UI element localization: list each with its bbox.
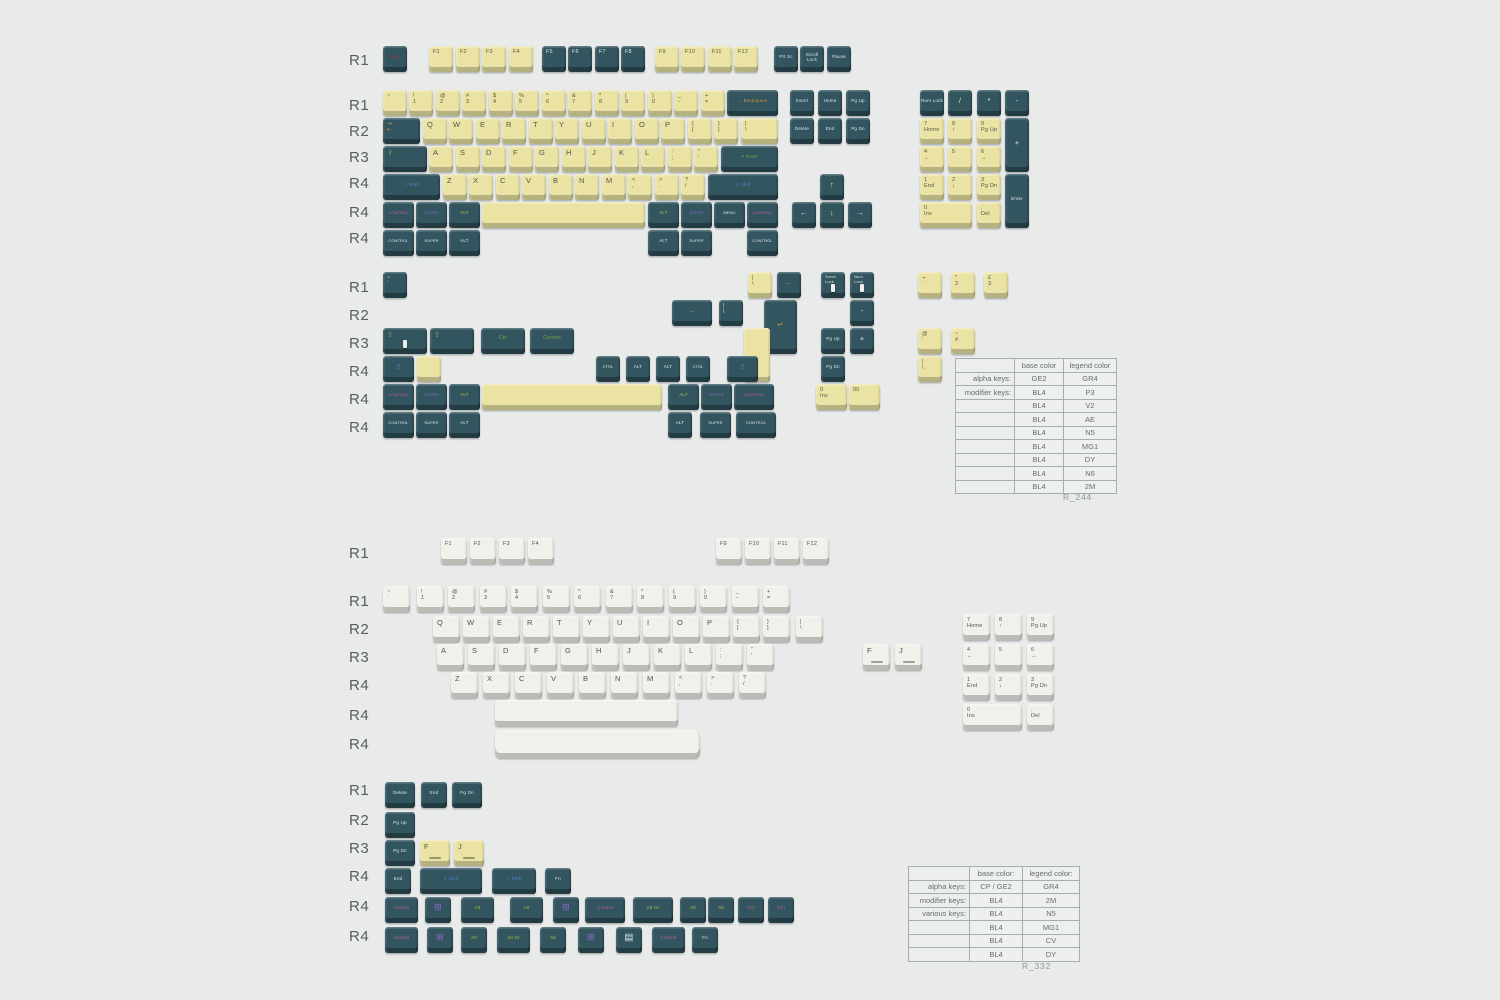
keycap-legend: N xyxy=(575,174,599,200)
keycap-legend: Insert xyxy=(790,90,814,116)
keycap-legend: W xyxy=(463,616,490,642)
keycap: Ctrl xyxy=(738,897,764,923)
keycap: ⇧ Shift xyxy=(383,174,440,200)
keycap: M xyxy=(602,174,626,200)
keycap: < , xyxy=(675,672,702,698)
keycap: J xyxy=(588,146,612,172)
keycap-legend: CONTROL xyxy=(747,202,778,228)
keycap: ALT xyxy=(648,230,679,256)
table-cell: BL4 xyxy=(970,907,1023,921)
row-label: R1 xyxy=(349,97,369,114)
table-cell xyxy=(956,467,1015,481)
kit-r332-alphas: F1F2F3F4F9F10F11F12~ `! 1@ 2# 3$ 4% 5^ 6… xyxy=(0,0,1500,1000)
keycap-legend: B xyxy=(579,672,606,698)
row-label: R4 xyxy=(349,898,369,915)
keycap-legend: 0 Ins xyxy=(920,202,972,228)
keycap-legend: F3 xyxy=(499,538,525,564)
table-cell: DY xyxy=(1023,948,1080,962)
keycap-legend: SUPER xyxy=(681,202,712,228)
keycap: 2 ↓ xyxy=(995,674,1022,700)
keycap: Alt xyxy=(680,897,706,923)
keycap: Pg Up xyxy=(846,90,870,116)
keycap-legend: 7 Home xyxy=(920,118,944,144)
row-label: R3 xyxy=(349,649,369,666)
keycap-legend: Alt xyxy=(708,897,734,923)
keycap: F10 xyxy=(681,46,705,72)
keycap: ~ ` xyxy=(383,272,407,298)
keycap: End xyxy=(421,782,447,808)
keycap: J xyxy=(454,840,484,866)
keycap-legend: Pause xyxy=(827,46,851,72)
keycap-legend: * 8 xyxy=(595,90,619,116)
keycap: 5 xyxy=(948,146,972,172)
keycap-legend: R xyxy=(523,616,550,642)
keycap-legend: R xyxy=(502,118,526,144)
keycap-legend: 9 Pg Up xyxy=(1027,614,1054,640)
keycap-legend: ~ # xyxy=(951,328,975,354)
keycap-legend: 4 ← xyxy=(963,644,990,670)
keycap: SUPER xyxy=(416,384,447,410)
keycap: ⇥ ⇤ xyxy=(383,118,420,144)
keycap-legend: Q xyxy=(423,118,447,144)
keycap: Control xyxy=(652,927,685,953)
keycap-legend: £ 3 xyxy=(984,272,1008,298)
keycap: | \ xyxy=(741,118,778,144)
keycap: ALT xyxy=(668,384,699,410)
keycap: 5 xyxy=(995,644,1022,670)
keycap-legend: ⇧ Shift xyxy=(383,174,440,200)
keycap-legend: ? / xyxy=(681,174,705,200)
keycap-legend: Alt xyxy=(461,927,487,953)
keycap: Alt Gr xyxy=(497,927,530,953)
row-label: R2 xyxy=(349,812,369,829)
keycap: R xyxy=(523,616,550,642)
row-label: R4 xyxy=(349,677,369,694)
keycap: 4 ← xyxy=(920,146,944,172)
keycap-legend: SUPER xyxy=(681,230,712,256)
keycap: Q xyxy=(433,616,460,642)
keycap: ~ ` xyxy=(383,586,410,612)
keycap-legend: V xyxy=(522,174,546,200)
row-label: R4 xyxy=(349,175,369,192)
keycap-legend: F xyxy=(863,644,890,670)
keycap: F11 xyxy=(708,46,732,72)
keycap-legend: ← xyxy=(792,202,816,228)
keycap-legend: ▤ xyxy=(616,927,642,953)
keycap: 00 xyxy=(849,384,880,410)
kit-label: R_332 xyxy=(1022,961,1051,971)
keycap-legend: | \ xyxy=(918,356,942,382)
keycap: F3 xyxy=(482,46,506,72)
keycap: ? / xyxy=(739,672,766,698)
keycap: ^ 6 xyxy=(542,90,566,116)
keycap: F xyxy=(420,840,450,866)
keycap-legend: N xyxy=(611,672,638,698)
table-cell: BL4 xyxy=(970,894,1023,908)
keycap-legend: S xyxy=(468,644,495,670)
keycap: ⊞ xyxy=(578,927,604,953)
keycap-legend: % 5 xyxy=(543,586,570,612)
keycap: ⇧ Shift xyxy=(708,174,778,200)
keycap: ← xyxy=(792,202,816,228)
keycap-legend: Control xyxy=(385,927,418,953)
keycap: ? / xyxy=(681,174,705,200)
keycap: " ' xyxy=(694,146,718,172)
keycap-legend: . Del xyxy=(977,202,1001,228)
keycap-legend: K xyxy=(654,644,681,670)
keycap xyxy=(495,700,678,726)
keycap: } ] xyxy=(763,616,790,642)
keycap: F4 xyxy=(509,46,533,72)
keycap: $ 4 xyxy=(511,586,538,612)
keycap: I xyxy=(608,118,632,144)
keycap: ⇧ Shift xyxy=(492,868,536,894)
keycap: Pg Up xyxy=(385,812,415,838)
keycap-legend: - xyxy=(850,300,874,326)
keycap: Prt Sc xyxy=(774,46,798,72)
keycap-legend: L xyxy=(641,146,665,172)
keycap: T xyxy=(529,118,553,144)
keycap: 9 Pg Up xyxy=(977,118,1001,144)
keycap: 2 ↓ xyxy=(948,174,972,200)
keycap-legend: Control xyxy=(585,897,625,923)
keycap: & 7 xyxy=(606,586,633,612)
keycap-legend: Control xyxy=(385,897,418,923)
keycap: End xyxy=(385,868,411,894)
table-cell: GR4 xyxy=(1064,372,1117,386)
keycap-legend: Alt xyxy=(461,897,494,923)
keycap-legend: E xyxy=(476,118,500,144)
keycap-legend: # 3 xyxy=(480,586,507,612)
keycap: P xyxy=(703,616,730,642)
keycap: * xyxy=(977,90,1001,116)
table-cell xyxy=(909,948,970,962)
keycap: ⇧ xyxy=(383,356,414,382)
keycap-legend: Delete xyxy=(385,782,415,808)
row-label: R3 xyxy=(349,149,369,166)
keycap: " 2 xyxy=(951,272,975,298)
keycap: SUPER xyxy=(700,412,731,438)
keycap-legend: F10 xyxy=(745,538,771,564)
keycap: CTRL xyxy=(596,356,620,382)
keycap-legend: E xyxy=(493,616,520,642)
keycap-legend: | \ xyxy=(719,300,743,326)
table-cell: BL4 xyxy=(1015,413,1064,427)
keycap-legend: 3 Pg Dn xyxy=(977,174,1001,200)
keycap-legend: U xyxy=(613,616,640,642)
keycap: Fn xyxy=(545,868,571,894)
keycap-legend: F10 xyxy=(681,46,705,72)
table-cell xyxy=(956,440,1015,454)
keycap-legend: K xyxy=(615,146,639,172)
keycap: F8 xyxy=(621,46,645,72)
keycap-legend: X xyxy=(469,174,493,200)
keycap: W xyxy=(449,118,473,144)
keycap-legend: End xyxy=(421,782,447,808)
keycap-legend: ⊞ xyxy=(578,927,604,953)
keycap: 7 Home xyxy=(920,118,944,144)
keycap-legend: F6 xyxy=(568,46,592,72)
table-cell: modifier keys: xyxy=(956,386,1015,400)
keycap-legend: J xyxy=(588,146,612,172)
keycap: £ 3 xyxy=(984,272,1008,298)
row-label: R4 xyxy=(349,230,369,247)
keycap-legend: @ 2 xyxy=(448,586,475,612)
table-cell xyxy=(956,453,1015,467)
keycap: * 8 xyxy=(595,90,619,116)
keycap: Pg Dn xyxy=(821,356,845,382)
table-cell: BL4 xyxy=(1015,440,1064,454)
keycap-legend: Y xyxy=(583,616,610,642)
keycap: ALT xyxy=(626,356,650,382)
keycap: R xyxy=(502,118,526,144)
keycap-legend: F9 xyxy=(716,538,742,564)
keycap: G xyxy=(561,644,588,670)
homing-dash xyxy=(463,857,475,860)
keycap-legend: Pg Dn xyxy=(385,840,415,866)
keycap-legend: ⊞ xyxy=(553,897,579,923)
table-cell: N5 xyxy=(1023,907,1080,921)
table-header-cell: base color xyxy=(1015,359,1064,373)
keycap: X xyxy=(483,672,510,698)
table-cell: BL4 xyxy=(1015,399,1064,413)
keycap-legend: Control xyxy=(530,328,574,354)
keycap: _ - xyxy=(732,586,759,612)
keycap-legend: Control xyxy=(652,927,685,953)
row-label: R1 xyxy=(349,545,369,562)
keycap-legend: SUPER xyxy=(416,202,447,228)
keycap-legend: ← Backspace xyxy=(727,90,778,116)
keycap: | \ xyxy=(719,300,743,326)
keycap: 1 End xyxy=(920,174,944,200)
keycap: Scroll Lock xyxy=(800,46,824,72)
keycap: F11 xyxy=(774,538,800,564)
row-label: R4 xyxy=(349,928,369,945)
keycap: Delete xyxy=(385,782,415,808)
keycap: Pg Dn xyxy=(846,118,870,144)
keycap-legend: ALT xyxy=(626,356,650,382)
keycap: S xyxy=(468,644,495,670)
table-cell: GE2 xyxy=(1015,372,1064,386)
kit-label: R_244 xyxy=(1063,492,1092,502)
keycap: ⇪ xyxy=(383,328,427,354)
keycap: CONTROL xyxy=(747,202,778,228)
keycap: L xyxy=(685,644,712,670)
keycap: F xyxy=(863,644,890,670)
keycap-legend: 7 Home xyxy=(963,614,990,640)
row-label: R1 xyxy=(349,782,369,799)
keycap: F9 xyxy=(655,46,679,72)
keycap-legend: Prt Sc xyxy=(774,46,798,72)
keycap-legend: A xyxy=(437,644,464,670)
keycap xyxy=(482,202,645,228)
keycap: F12 xyxy=(803,538,829,564)
keycap-legend: $ 4 xyxy=(489,90,513,116)
table-cell: alpha keys: xyxy=(909,880,970,894)
keycap: E xyxy=(476,118,500,144)
keycap: - xyxy=(1005,90,1029,116)
keycap: Scroll Lock xyxy=(821,272,845,298)
table-cell xyxy=(956,413,1015,427)
keycap-legend: X xyxy=(483,672,510,698)
keycap-legend: S xyxy=(456,146,480,172)
keycap-legend: F12 xyxy=(803,538,829,564)
keycap: Pg Dn xyxy=(385,840,415,866)
keycap: T xyxy=(553,616,580,642)
keycap-legend: Ctrl xyxy=(768,897,794,923)
keycap-legend: ALT xyxy=(449,384,480,410)
keycap xyxy=(744,328,770,382)
keycap: " ' xyxy=(747,644,774,670)
table-header-cell: legend color xyxy=(1064,359,1117,373)
keycap: 0 Ins xyxy=(920,202,972,228)
keycap-legend: & 7 xyxy=(606,586,633,612)
row-label: R4 xyxy=(349,363,369,380)
keycap-legend: CONTROL xyxy=(383,230,414,256)
keycap: A xyxy=(437,644,464,670)
keycap: D xyxy=(499,644,526,670)
keycap: K xyxy=(615,146,639,172)
indicator-bar xyxy=(831,284,835,292)
keycap: ALT xyxy=(449,412,480,438)
table-cell: CV xyxy=(1023,934,1080,948)
keycap: + xyxy=(850,328,874,354)
keycap-legend: F11 xyxy=(708,46,732,72)
keycap-render-canvas: R1R1R2R3R4R4R4R1R2R3R4R4R4R1R1R2R3R4R4R4… xyxy=(0,0,1500,1000)
keycap: O xyxy=(673,616,700,642)
keycap: O xyxy=(635,118,659,144)
keycap-legend: Alt Gr xyxy=(497,927,530,953)
keycap: Y xyxy=(555,118,579,144)
keycap: ⇪ xyxy=(430,328,474,354)
keycap-legend: ) 0 xyxy=(700,586,727,612)
kit-r332-mods: DeleteEndPg DnPg UpPg DnFJEnd⇧ Shift⇧ Sh… xyxy=(0,0,1500,1000)
keycap-legend: ↵ Enter xyxy=(721,146,778,172)
keycap: ( 9 xyxy=(669,586,696,612)
keycap-legend: | \ xyxy=(741,118,778,144)
row-label: R2 xyxy=(349,307,369,324)
keycap: J xyxy=(623,644,650,670)
keycap-legend: Ctrl xyxy=(738,897,764,923)
keycap: Pg Up xyxy=(821,328,845,354)
keycap: CONTROL xyxy=(383,230,414,256)
table-cell: MG1 xyxy=(1023,921,1080,935)
row-label: R2 xyxy=(349,621,369,638)
keycap-legend: ALT xyxy=(449,202,480,228)
keycap-legend: " ' xyxy=(694,146,718,172)
keycap: F1 xyxy=(429,46,453,72)
keycap: P xyxy=(661,118,685,144)
keycap-legend: ⊞ xyxy=(427,927,453,953)
keycap-legend: 00 xyxy=(849,384,880,410)
keycap-legend: ~ ` xyxy=(383,90,407,116)
keycap: ALT xyxy=(656,356,680,382)
keycap: _ - xyxy=(674,90,698,116)
keycap-legend: ( 9 xyxy=(621,90,645,116)
keycap: F9 xyxy=(716,538,742,564)
homing-dash xyxy=(429,857,441,860)
keycap-legend: ( 9 xyxy=(669,586,696,612)
keycap-legend: + = xyxy=(763,586,790,612)
keycap-legend: Pg Up xyxy=(846,90,870,116)
keycap: Control xyxy=(530,328,574,354)
keycap-legend: A xyxy=(429,146,453,172)
keycap-legend: F xyxy=(509,146,533,172)
keycap-legend: ALT xyxy=(648,230,679,256)
keycap-legend: U xyxy=(582,118,606,144)
keycap-legend: Pg Up xyxy=(385,812,415,838)
keycap-legend: + = xyxy=(701,90,725,116)
keycap-legend: G xyxy=(535,146,559,172)
table-cell: BL4 xyxy=(970,921,1023,935)
keycap: W xyxy=(463,616,490,642)
table-header-cell: legend color: xyxy=(1023,867,1080,881)
keycap: ← xyxy=(777,272,801,298)
table-cell: MG1 xyxy=(1064,440,1117,454)
keycap: } ] xyxy=(714,118,738,144)
keycap-legend: V xyxy=(547,672,574,698)
keycap: D xyxy=(482,146,506,172)
keycap-legend: Pg Up xyxy=(821,328,845,354)
table-cell xyxy=(956,426,1015,440)
keycap: ALT xyxy=(648,202,679,228)
keycap: B xyxy=(549,174,573,200)
table-cell: various keys: xyxy=(909,907,970,921)
keycap-legend: Fn xyxy=(692,927,718,953)
table-cell: AE xyxy=(1064,413,1117,427)
keycap: Insert xyxy=(790,90,814,116)
keycap: { [ xyxy=(688,118,712,144)
keycap-legend: Y xyxy=(555,118,579,144)
keycap: F1 xyxy=(441,538,467,564)
keycap-legend: 9 Pg Up xyxy=(977,118,1001,144)
keycap-legend: ALT xyxy=(449,230,480,256)
keycap: CONTROL xyxy=(383,412,414,438)
keycap-legend: 3 Pg Dn xyxy=(1027,674,1054,700)
keycap: ALT xyxy=(449,202,480,228)
keycap-legend: 0 Ins xyxy=(963,704,1022,730)
keycap-legend: ↵ xyxy=(764,300,797,354)
keycap-legend: * xyxy=(977,90,1001,116)
keycap: CONTROL xyxy=(747,230,778,256)
keycap: F6 xyxy=(568,46,592,72)
row-label: R3 xyxy=(349,840,369,857)
keycap: : ; xyxy=(668,146,692,172)
keycap-legend: Num Lock xyxy=(920,90,944,116)
row-label: R4 xyxy=(349,204,369,221)
keycap: 0 Ins xyxy=(963,704,1022,730)
keycap: J xyxy=(895,644,922,670)
keycap: F xyxy=(509,146,533,172)
keycap-legend: Ctrl xyxy=(481,328,525,354)
keycap: CONTROL xyxy=(736,412,776,438)
keycap-legend: ^ 6 xyxy=(542,90,566,116)
table-header-cell: base color: xyxy=(970,867,1023,881)
keycap: Ctrl xyxy=(768,897,794,923)
keycap: / xyxy=(948,90,972,116)
keycap: ALT xyxy=(449,230,480,256)
keycap-legend: - xyxy=(1005,90,1029,116)
keycap-legend: _ - xyxy=(732,586,759,612)
keycap: # 3 xyxy=(462,90,486,116)
keycap: V xyxy=(547,672,574,698)
keycap: ⊞ xyxy=(425,897,451,923)
keycap-legend: I xyxy=(643,616,670,642)
keycap-legend: Z xyxy=(443,174,467,200)
keycap-legend: H xyxy=(562,146,586,172)
table-cell: alpha keys: xyxy=(956,372,1015,386)
keycap-legend: CONTROL xyxy=(747,230,778,256)
